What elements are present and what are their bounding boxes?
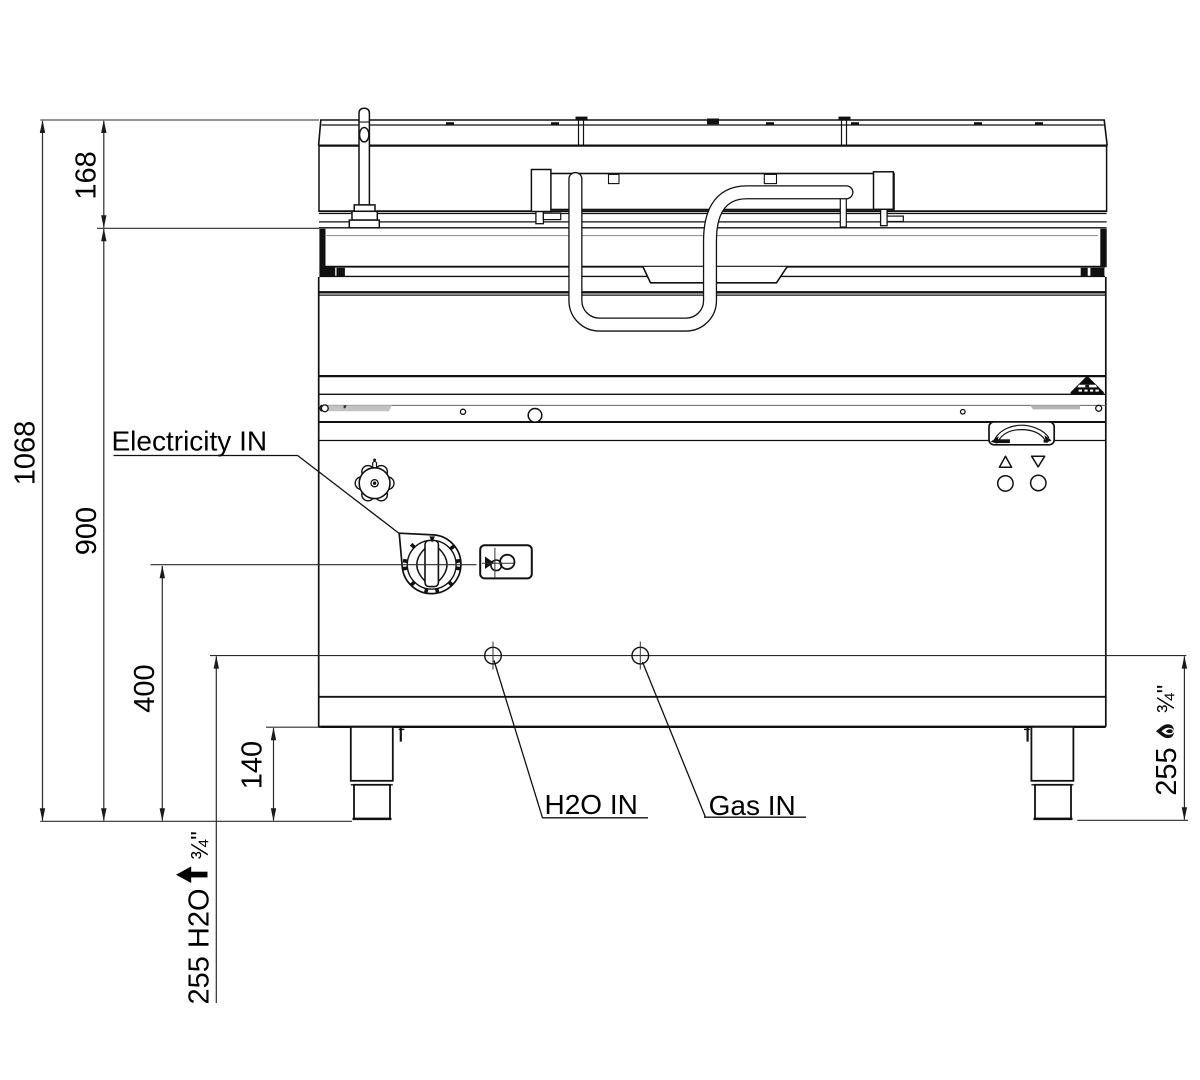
svg-text:Electricity IN: Electricity IN	[112, 426, 268, 457]
svg-text:1068: 1068	[10, 421, 42, 486]
svg-text:Gas IN: Gas IN	[709, 790, 796, 821]
svg-text:255 H2O: 255 H2O	[184, 888, 216, 1004]
svg-text:168: 168	[71, 151, 103, 199]
svg-text:255: 255	[1151, 747, 1183, 795]
svg-text:400: 400	[129, 664, 161, 712]
svg-text:¾": ¾"	[1153, 685, 1180, 714]
svg-text:900: 900	[71, 507, 103, 555]
svg-text:¾": ¾"	[187, 831, 214, 860]
svg-text:140: 140	[237, 741, 269, 789]
svg-text:H2O IN: H2O IN	[545, 789, 638, 820]
